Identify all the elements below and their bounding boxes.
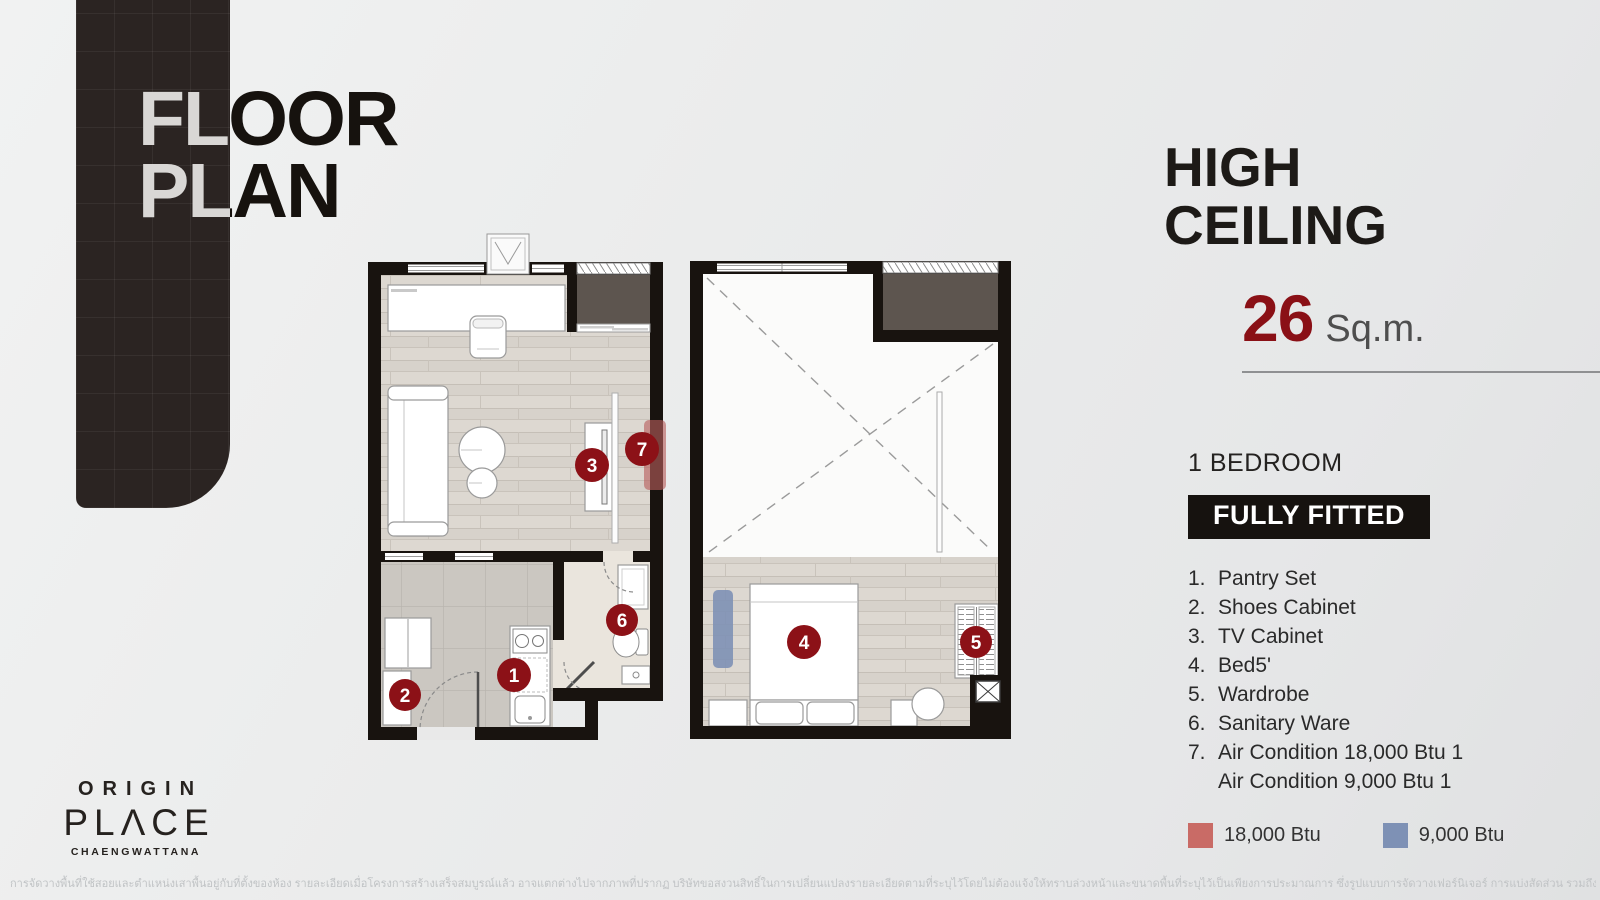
marker-pantry-set: 1: [497, 658, 531, 692]
shower: [618, 565, 648, 609]
desk-chair: [470, 316, 506, 358]
list-item: 2. Shoes Cabinet: [1188, 593, 1600, 622]
brand-logo: ORIGIN PLΛCE CHAENGWATTANA: [56, 778, 216, 858]
floor-plan-lower-level: 1 2 3 6 7: [360, 228, 680, 748]
marker-tv-cabinet: 3: [575, 448, 609, 482]
ac-legend: 18,000 Btu 9,000 Btu: [1188, 823, 1600, 848]
sofa: [388, 386, 448, 536]
legend-swatch-blue: [1383, 823, 1408, 848]
logo-origin: ORIGIN: [65, 778, 216, 801]
ac-condenser-ledge: [487, 234, 529, 274]
legend-item-9000: 9,000 Btu: [1383, 823, 1505, 848]
ac-ledge-floor: [883, 274, 998, 330]
marker-sanitary-ware: 6: [606, 604, 638, 636]
void-railing-edge: [612, 393, 618, 543]
unit-heading: HIGHCEILING: [1164, 138, 1600, 255]
balcony-railing: [577, 263, 650, 274]
svg-text:5: 5: [971, 633, 982, 654]
svg-text:3: 3: [587, 456, 598, 477]
marker-wardrobe: 5: [960, 626, 992, 658]
svg-text:4: 4: [799, 633, 810, 654]
unit-info-panel: HIGHCEILING 26 Sq.m. 1 BEDROOM FULLY FIT…: [1164, 138, 1600, 848]
list-item: 7. Air Condition 18,000 Btu 1: [1188, 738, 1600, 767]
svg-text:1: 1: [509, 666, 520, 687]
svg-text:2: 2: [400, 686, 411, 707]
svg-text:6: 6: [617, 611, 628, 632]
bedroom-label: 1 BEDROOM: [1188, 449, 1600, 478]
list-item: 3. TV Cabinet: [1188, 622, 1600, 651]
marker-air-condition: 7: [625, 432, 659, 466]
area-value: 26: [1242, 285, 1313, 351]
legend-item-18000: 18,000 Btu: [1188, 823, 1321, 848]
windows: [717, 264, 847, 272]
void-glass-railing: [937, 392, 942, 552]
floor-plan-upper-level: 4 5: [685, 252, 1020, 752]
ledge-railing: [883, 262, 998, 273]
fully-fitted-badge: FULLY FITTED: [1188, 495, 1430, 539]
balcony-floor: [577, 275, 650, 326]
fit-out-list: 1. Pantry Set 2. Shoes Cabinet 3. TV Cab…: [1188, 564, 1600, 796]
shaft-box: [976, 681, 1000, 702]
list-item: 5. Wardrobe: [1188, 680, 1600, 709]
marker-bed: 4: [787, 625, 821, 659]
bath-sink: [622, 666, 650, 684]
legend-swatch-red: [1188, 823, 1213, 848]
ac-9000-btu-unit: [713, 590, 733, 668]
list-item: 6. Sanitary Ware: [1188, 709, 1600, 738]
area-unit: Sq.m.: [1325, 308, 1424, 351]
marker-shoes-cabinet: 2: [389, 679, 421, 711]
list-item: 1. Pantry Set: [1188, 564, 1600, 593]
unit-area: 26 Sq.m.: [1242, 285, 1600, 351]
list-item: Air Condition 9,000 Btu 1: [1188, 767, 1600, 796]
stool: [912, 688, 944, 720]
svg-text:7: 7: [637, 440, 648, 461]
floor-plan-page: FLOORPLAN FLOORPLAN: [0, 0, 1600, 900]
disclaimer-text: การจัดวางพื้นที่ใช้สอยและตำแหน่งเสาพื้นอ…: [10, 874, 1596, 892]
logo-location: CHAENGWATTANA: [56, 846, 216, 858]
list-item: 4. Bed5': [1188, 651, 1600, 680]
logo-place: PLΛCE: [62, 802, 216, 844]
divider-rule: [1242, 371, 1600, 373]
sliding-door: [577, 324, 650, 332]
